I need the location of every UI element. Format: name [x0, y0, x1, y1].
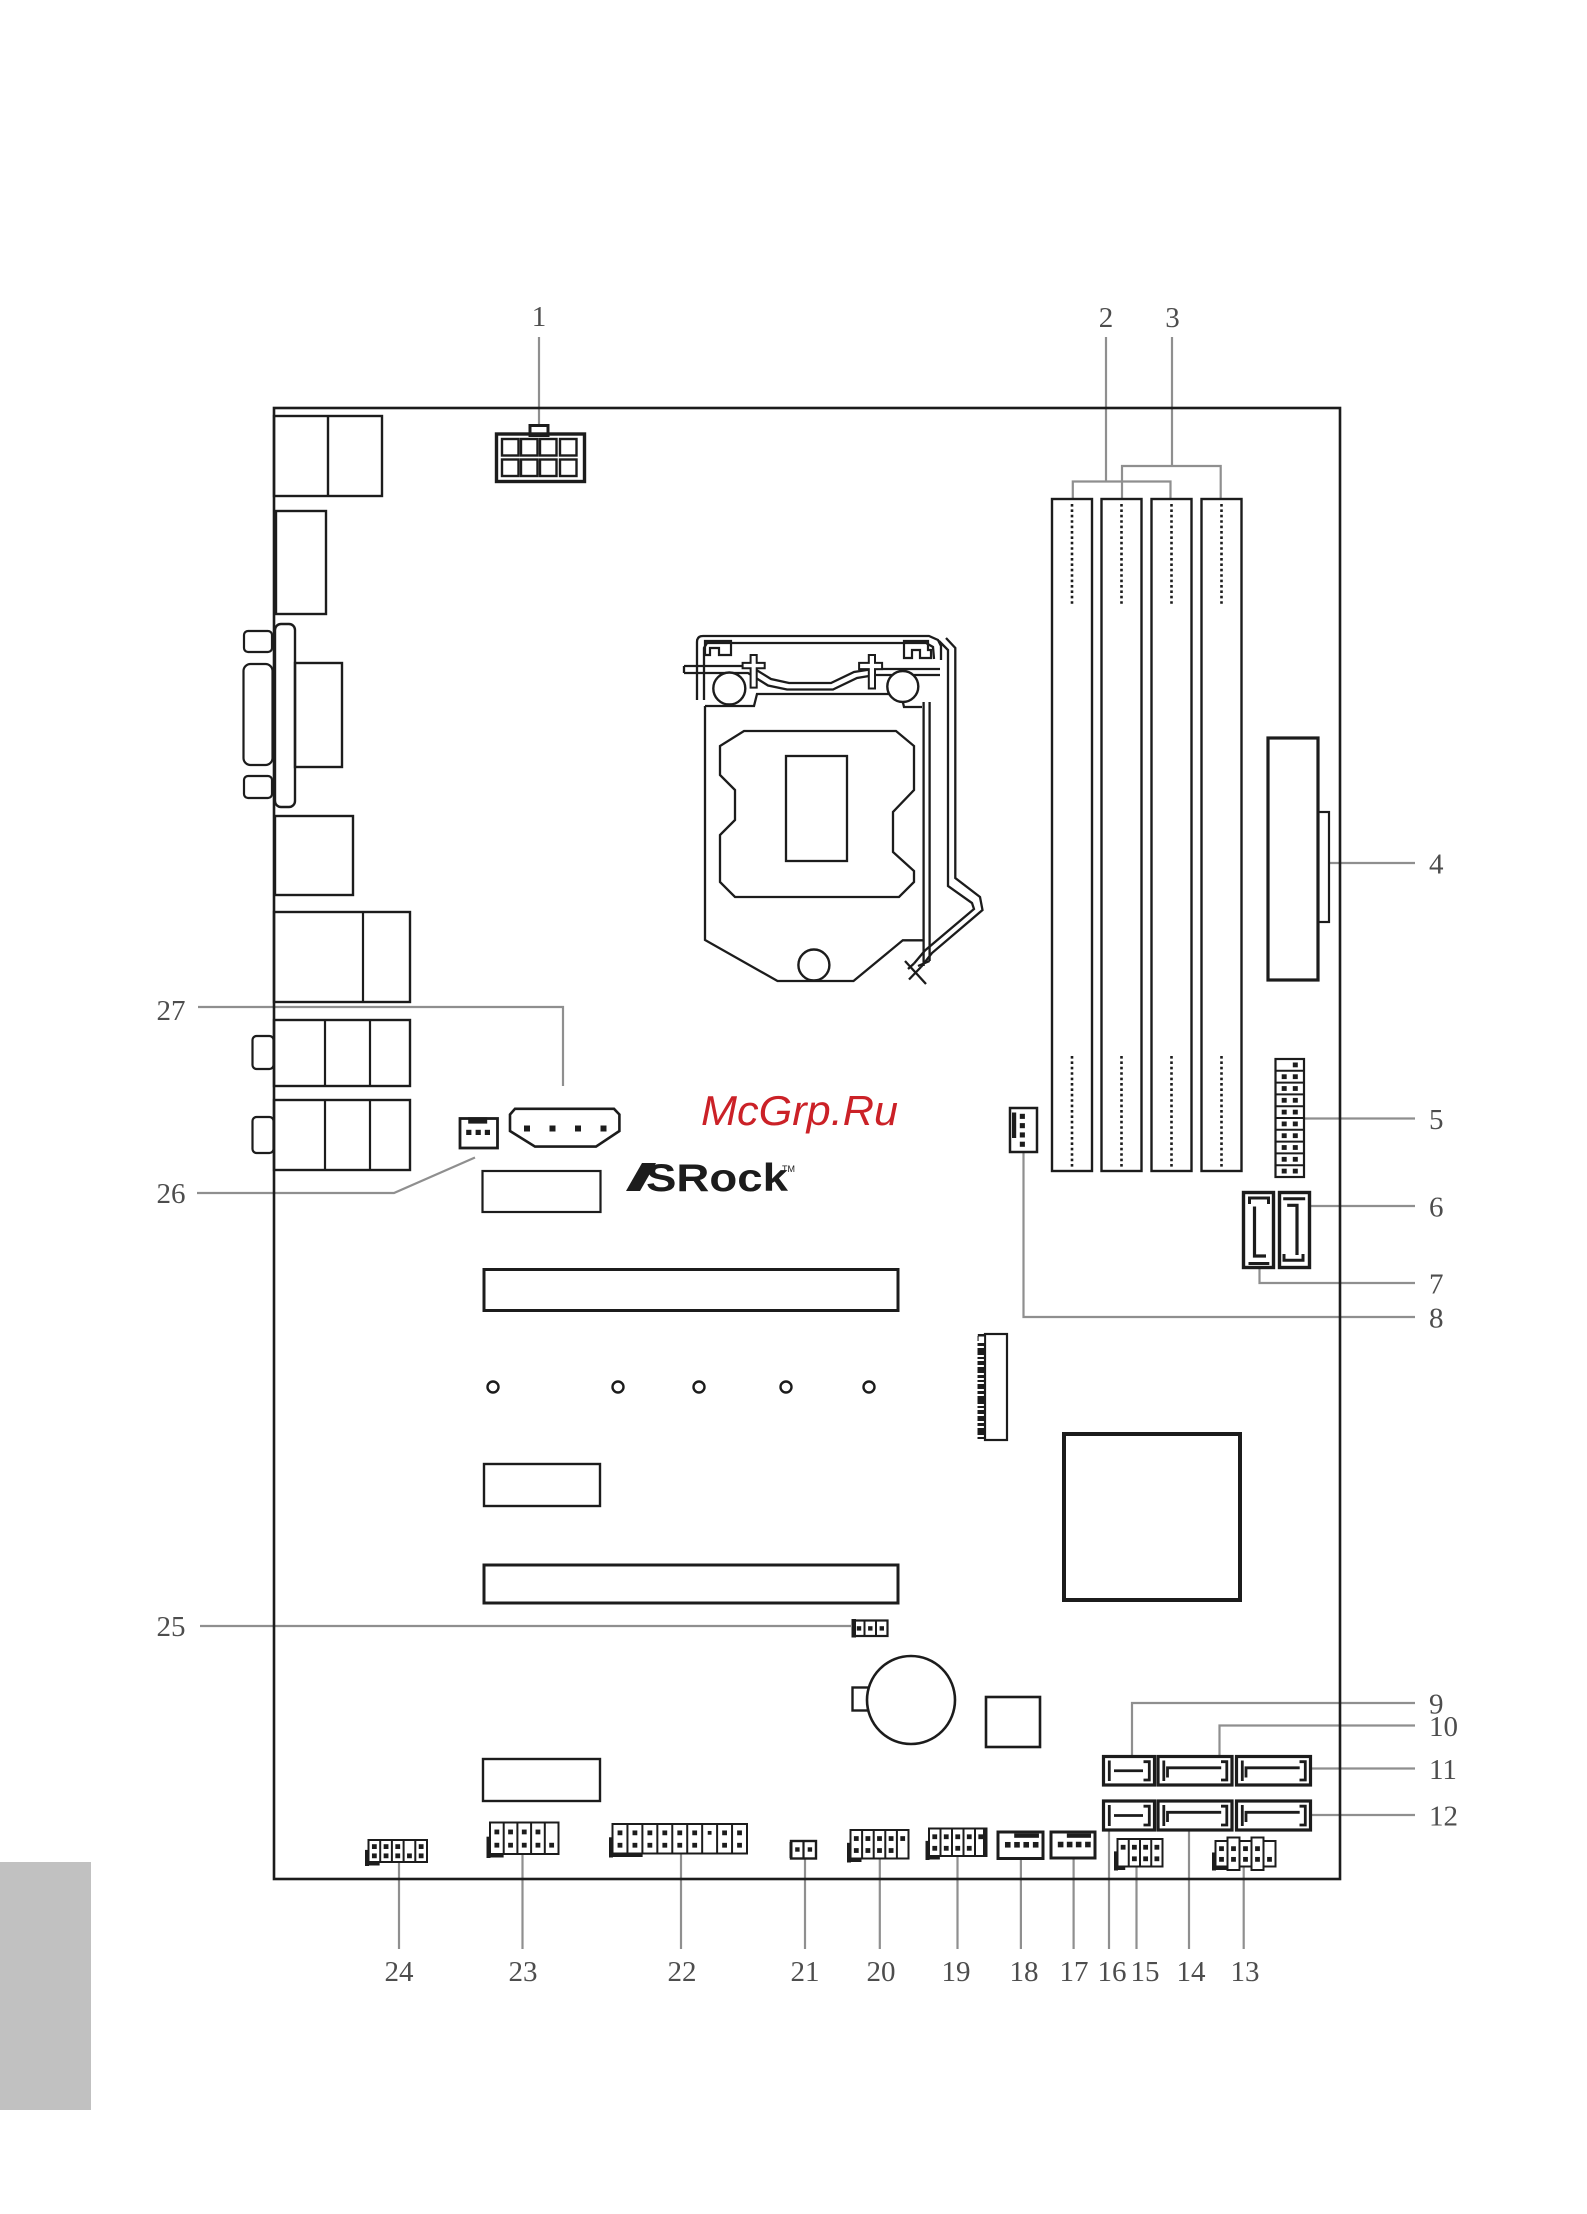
svg-text:12: 12: [1429, 1801, 1458, 1833]
svg-text:8: 8: [1429, 1303, 1444, 1335]
svg-text:7: 7: [1429, 1269, 1444, 1301]
svg-text:13: 13: [1231, 1956, 1260, 1988]
svg-text:14: 14: [1177, 1956, 1207, 1988]
svg-text:2: 2: [1099, 302, 1114, 334]
svg-text:25: 25: [157, 1611, 186, 1643]
svg-text:24: 24: [385, 1956, 415, 1988]
svg-text:18: 18: [1010, 1956, 1039, 1988]
svg-text:17: 17: [1060, 1956, 1089, 1988]
svg-text:SRock: SRock: [646, 1157, 788, 1200]
svg-text:11: 11: [1429, 1754, 1457, 1786]
svg-text:10: 10: [1429, 1711, 1458, 1743]
svg-text:22: 22: [668, 1956, 697, 1988]
svg-text:McGrp.Ru: McGrp.Ru: [701, 1087, 898, 1134]
svg-text:TM: TM: [782, 1164, 795, 1174]
svg-text:6: 6: [1429, 1192, 1444, 1224]
svg-text:16: 16: [1098, 1956, 1127, 1988]
svg-text:19: 19: [942, 1956, 971, 1988]
svg-text:1: 1: [532, 301, 547, 333]
svg-text:27: 27: [157, 995, 186, 1027]
svg-text:23: 23: [509, 1956, 538, 1988]
svg-text:4: 4: [1429, 849, 1444, 881]
svg-text:3: 3: [1165, 302, 1180, 334]
svg-text:20: 20: [867, 1956, 896, 1988]
svg-text:5: 5: [1429, 1104, 1444, 1136]
svg-text:15: 15: [1131, 1956, 1160, 1988]
svg-text:26: 26: [157, 1178, 186, 1210]
svg-text:21: 21: [791, 1956, 820, 1988]
